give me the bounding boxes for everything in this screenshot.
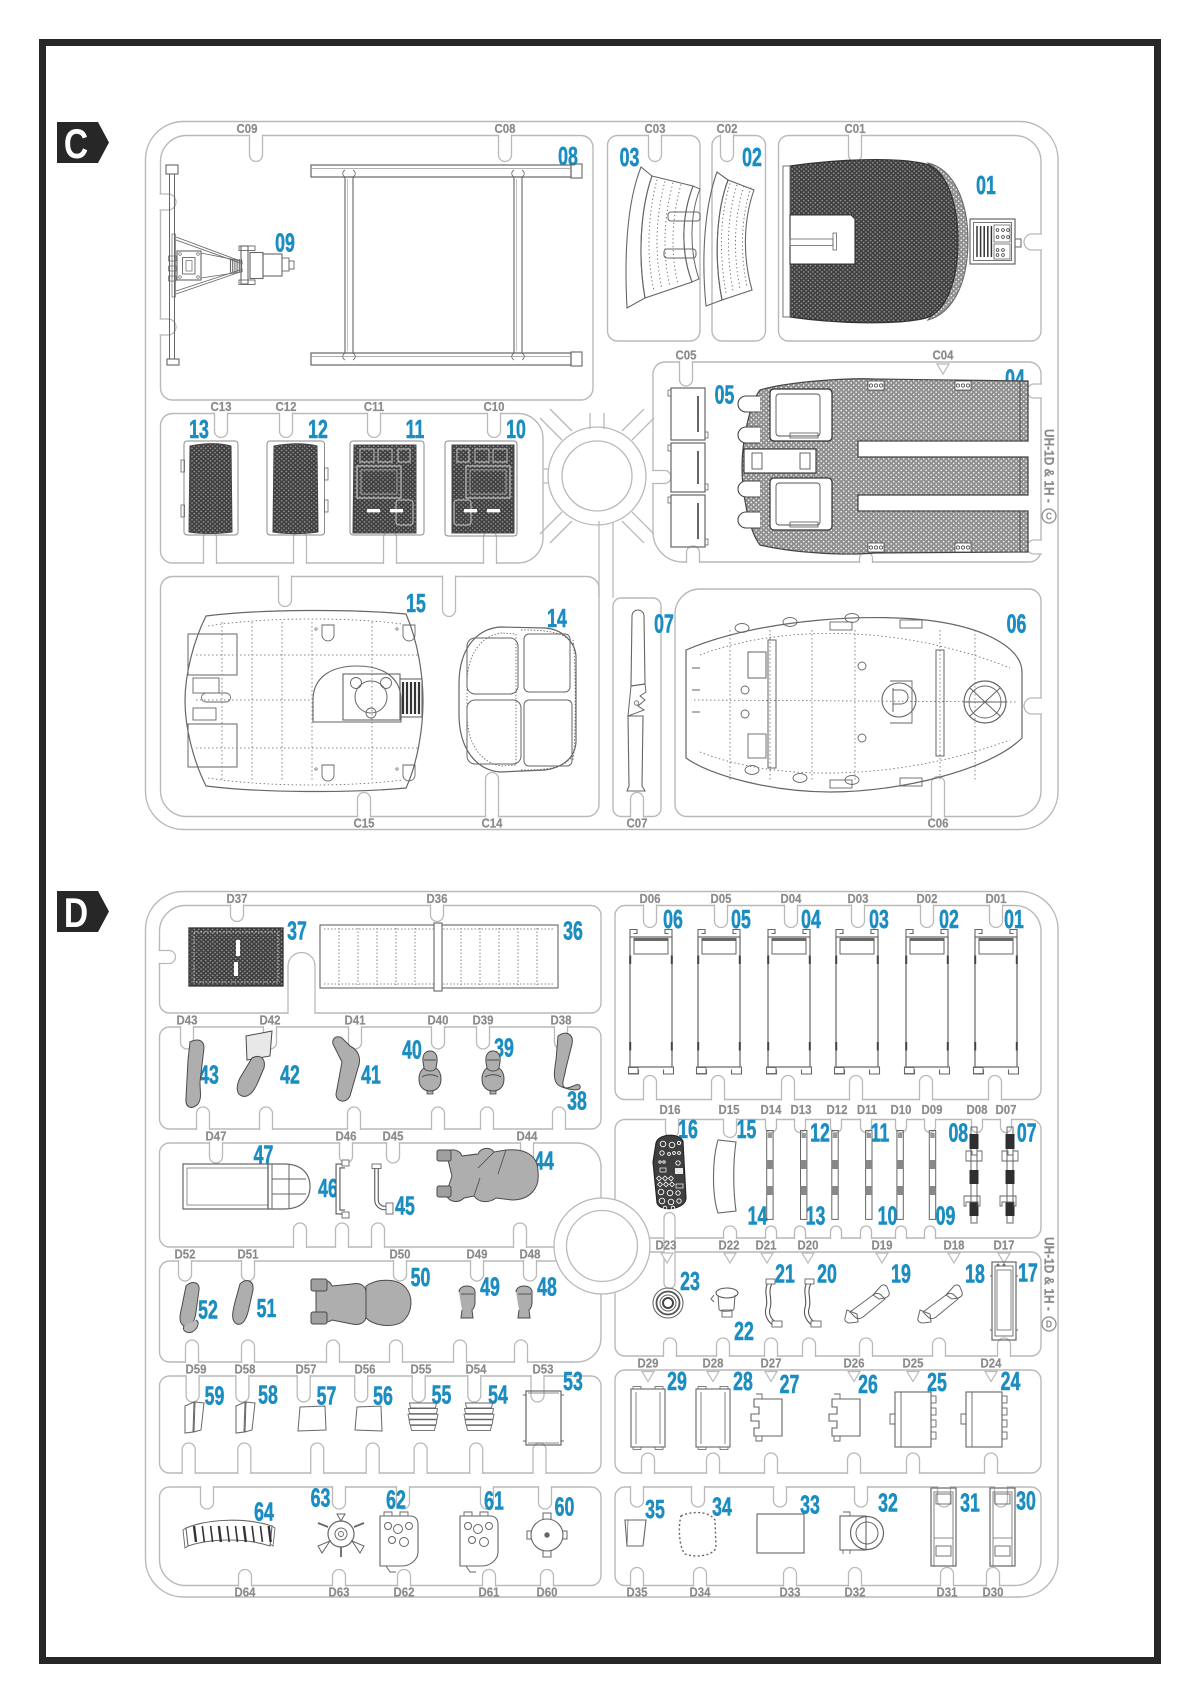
svg-text:C11: C11	[364, 400, 385, 415]
svg-text:02: 02	[742, 142, 762, 171]
svg-text:D55: D55	[411, 1362, 432, 1377]
svg-text:15: 15	[737, 1114, 757, 1143]
svg-text:C: C	[1046, 511, 1052, 522]
svg-text:19: 19	[891, 1259, 911, 1288]
svg-text:35: 35	[645, 1494, 665, 1523]
svg-text:D51: D51	[238, 1247, 259, 1262]
svg-text:D01: D01	[986, 891, 1007, 906]
svg-text:08: 08	[948, 1118, 968, 1147]
svg-text:C03: C03	[645, 121, 666, 136]
svg-text:01: 01	[976, 170, 996, 199]
svg-text:38: 38	[567, 1086, 587, 1115]
svg-text:33: 33	[800, 1490, 820, 1519]
svg-text:27: 27	[780, 1369, 800, 1398]
svg-text:D46: D46	[336, 1129, 357, 1144]
svg-text:D03: D03	[848, 891, 869, 906]
svg-text:15: 15	[406, 588, 426, 617]
svg-text:D23: D23	[656, 1238, 677, 1253]
svg-text:C05: C05	[676, 348, 697, 363]
svg-text:32: 32	[878, 1488, 898, 1517]
svg-text:D19: D19	[872, 1238, 893, 1253]
svg-text:C: C	[64, 122, 88, 168]
svg-text:D12: D12	[827, 1103, 848, 1118]
svg-text:17: 17	[1018, 1258, 1038, 1287]
svg-text:28: 28	[733, 1366, 753, 1395]
svg-text:D28: D28	[703, 1356, 724, 1371]
svg-text:D63: D63	[329, 1585, 350, 1600]
svg-text:D59: D59	[186, 1362, 207, 1377]
svg-text:58: 58	[258, 1380, 278, 1409]
svg-text:C10: C10	[484, 400, 505, 415]
svg-text:D18: D18	[944, 1238, 965, 1253]
svg-text:63: 63	[311, 1483, 331, 1512]
svg-text:12: 12	[308, 414, 328, 443]
svg-text:D52: D52	[175, 1247, 196, 1262]
svg-text:D35: D35	[627, 1585, 648, 1600]
svg-text:D48: D48	[520, 1247, 541, 1262]
svg-text:D17: D17	[994, 1238, 1015, 1253]
svg-text:UH-1D & 1H -: UH-1D & 1H -	[1041, 429, 1057, 503]
svg-text:11: 11	[406, 414, 425, 443]
svg-text:D30: D30	[983, 1585, 1004, 1600]
svg-text:D09: D09	[922, 1103, 943, 1118]
svg-text:C14: C14	[482, 816, 503, 831]
svg-text:10: 10	[878, 1201, 898, 1230]
svg-text:03: 03	[620, 142, 640, 171]
svg-text:D47: D47	[206, 1129, 227, 1144]
svg-text:D31: D31	[937, 1585, 958, 1600]
svg-text:C01: C01	[845, 121, 866, 136]
svg-text:42: 42	[280, 1060, 300, 1089]
svg-text:D: D	[1046, 1319, 1052, 1330]
svg-text:D38: D38	[551, 1013, 572, 1028]
svg-text:14: 14	[748, 1201, 768, 1230]
svg-text:D32: D32	[845, 1585, 866, 1600]
svg-text:D04: D04	[781, 891, 802, 906]
svg-text:36: 36	[563, 916, 583, 945]
svg-text:59: 59	[205, 1381, 225, 1410]
svg-text:C09: C09	[237, 121, 258, 136]
svg-text:D60: D60	[537, 1585, 558, 1600]
svg-text:D34: D34	[690, 1585, 711, 1600]
svg-text:D42: D42	[260, 1013, 281, 1028]
svg-text:D16: D16	[660, 1103, 681, 1118]
svg-text:D40: D40	[428, 1013, 449, 1028]
svg-text:48: 48	[537, 1272, 557, 1301]
svg-text:13: 13	[806, 1201, 826, 1230]
svg-text:54: 54	[488, 1380, 508, 1409]
svg-text:D53: D53	[533, 1362, 554, 1377]
svg-text:D11: D11	[857, 1103, 878, 1118]
svg-text:40: 40	[402, 1035, 422, 1064]
svg-text:D13: D13	[791, 1103, 812, 1118]
svg-text:05: 05	[715, 380, 735, 409]
svg-text:55: 55	[432, 1380, 452, 1409]
svg-text:C07: C07	[627, 816, 648, 831]
svg-text:41: 41	[361, 1060, 381, 1089]
svg-text:D20: D20	[798, 1238, 819, 1253]
svg-text:C04: C04	[933, 348, 954, 363]
svg-text:60: 60	[555, 1492, 575, 1521]
svg-text:21: 21	[775, 1259, 795, 1288]
svg-text:D22: D22	[719, 1238, 740, 1253]
svg-text:46: 46	[318, 1173, 338, 1202]
svg-text:D25: D25	[903, 1356, 924, 1371]
svg-text:12: 12	[810, 1118, 830, 1147]
svg-text:49: 49	[480, 1272, 500, 1301]
svg-text:D56: D56	[355, 1362, 376, 1377]
svg-text:D06: D06	[640, 891, 661, 906]
svg-text:D27: D27	[761, 1356, 782, 1371]
svg-text:D14: D14	[761, 1103, 782, 1118]
svg-text:UH-1D & 1H -: UH-1D & 1H -	[1041, 1237, 1057, 1311]
svg-text:24: 24	[1001, 1366, 1021, 1395]
svg-text:D29: D29	[638, 1356, 659, 1371]
svg-text:29: 29	[667, 1366, 687, 1395]
svg-text:C12: C12	[276, 400, 297, 415]
svg-text:D36: D36	[427, 891, 448, 906]
svg-text:31: 31	[960, 1488, 980, 1517]
svg-text:13: 13	[189, 414, 209, 443]
svg-text:C06: C06	[928, 816, 949, 831]
svg-text:D02: D02	[917, 891, 938, 906]
svg-text:10: 10	[506, 414, 526, 443]
svg-text:45: 45	[395, 1191, 415, 1220]
svg-text:18: 18	[965, 1259, 985, 1288]
svg-text:C15: C15	[354, 816, 375, 831]
svg-text:D: D	[64, 891, 88, 937]
svg-text:30: 30	[1016, 1486, 1036, 1515]
svg-text:34: 34	[712, 1492, 732, 1521]
svg-text:07: 07	[1017, 1118, 1037, 1147]
svg-text:52: 52	[198, 1295, 218, 1324]
svg-text:D45: D45	[383, 1129, 404, 1144]
svg-text:D49: D49	[467, 1247, 488, 1262]
svg-text:08: 08	[558, 141, 578, 170]
svg-text:D07: D07	[996, 1103, 1017, 1118]
svg-text:D43: D43	[177, 1013, 198, 1028]
svg-text:50: 50	[411, 1262, 431, 1291]
svg-text:D54: D54	[466, 1362, 487, 1377]
svg-text:D37: D37	[227, 891, 248, 906]
svg-text:D05: D05	[711, 891, 732, 906]
svg-text:D39: D39	[473, 1013, 494, 1028]
svg-text:C02: C02	[717, 121, 738, 136]
svg-text:20: 20	[817, 1259, 837, 1288]
svg-text:C08: C08	[495, 121, 516, 136]
svg-text:51: 51	[257, 1293, 277, 1322]
svg-text:26: 26	[858, 1369, 878, 1398]
svg-text:23: 23	[680, 1266, 700, 1295]
svg-text:D10: D10	[891, 1103, 912, 1118]
svg-text:09: 09	[936, 1201, 956, 1230]
svg-text:09: 09	[275, 228, 295, 257]
svg-text:07: 07	[654, 609, 674, 638]
svg-text:47: 47	[254, 1140, 274, 1169]
svg-text:62: 62	[386, 1485, 406, 1514]
svg-text:D64: D64	[235, 1585, 256, 1600]
svg-text:D57: D57	[296, 1362, 317, 1377]
svg-text:D44: D44	[517, 1129, 538, 1144]
svg-text:53: 53	[563, 1366, 583, 1395]
svg-text:D61: D61	[479, 1585, 500, 1600]
svg-text:D50: D50	[390, 1247, 411, 1262]
svg-text:06: 06	[1007, 609, 1027, 638]
svg-text:D21: D21	[756, 1238, 777, 1253]
svg-text:D33: D33	[780, 1585, 801, 1600]
svg-text:D08: D08	[967, 1103, 988, 1118]
svg-text:D24: D24	[981, 1356, 1002, 1371]
svg-text:61: 61	[484, 1486, 504, 1515]
svg-text:D58: D58	[235, 1362, 256, 1377]
svg-text:C13: C13	[211, 400, 232, 415]
svg-text:D41: D41	[345, 1013, 366, 1028]
svg-text:11: 11	[871, 1118, 890, 1147]
svg-text:37: 37	[287, 916, 307, 945]
svg-text:D62: D62	[394, 1585, 415, 1600]
svg-text:22: 22	[734, 1316, 754, 1345]
